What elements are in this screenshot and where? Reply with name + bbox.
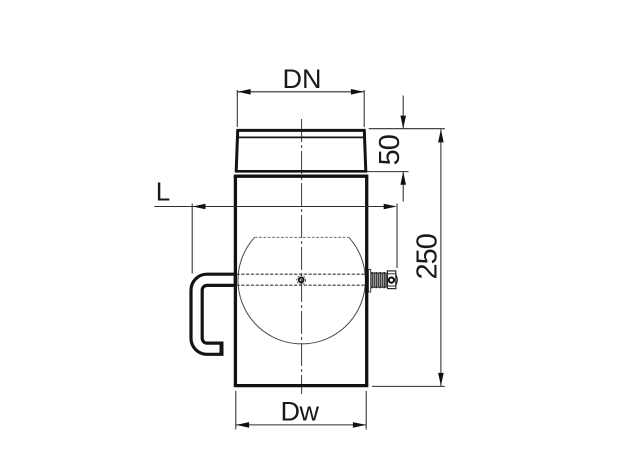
- svg-text:Dw: Dw: [281, 396, 320, 426]
- svg-text:DN: DN: [283, 64, 322, 94]
- svg-text:50: 50: [374, 135, 406, 165]
- svg-text:L: L: [156, 176, 170, 206]
- svg-text:250: 250: [412, 234, 444, 279]
